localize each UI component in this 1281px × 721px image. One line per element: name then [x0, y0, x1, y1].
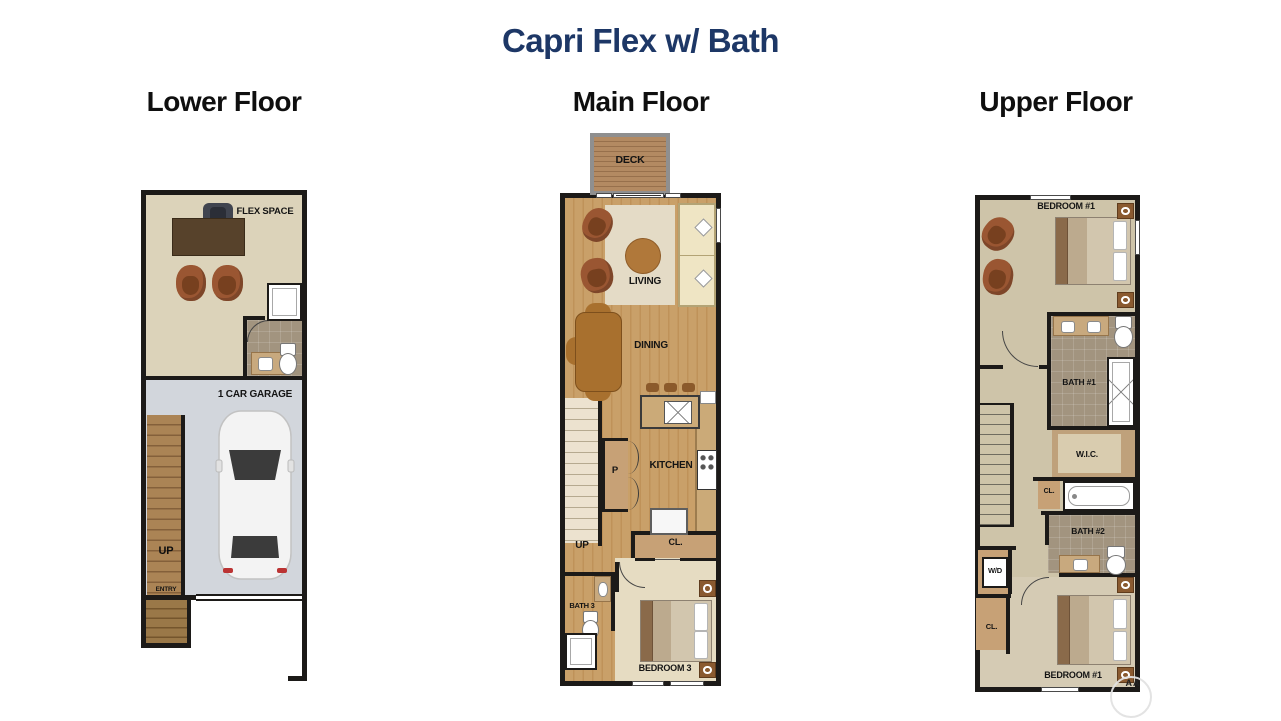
desk: [172, 218, 245, 256]
toilet: [279, 343, 295, 373]
sofa: [678, 203, 716, 307]
pantry-label: P: [602, 466, 628, 476]
wall: [980, 365, 1003, 369]
wall: [615, 562, 619, 592]
window: [670, 681, 704, 686]
main-floor-plan: DECK LIVING DINING KITCHEN P: [560, 133, 721, 686]
wall: [302, 600, 307, 681]
sink: [1087, 321, 1101, 333]
sofa-pillow: [694, 218, 712, 236]
bedroom3-label: BEDROOM 3: [620, 664, 710, 673]
nightstand: [699, 580, 716, 597]
entry-steps: [141, 600, 191, 648]
entry-label: ENTRY: [147, 587, 185, 594]
floorplan-page: Capri Flex w/ Bath Lower Floor Main Floo…: [0, 0, 1281, 721]
living-label: LIVING: [610, 277, 680, 288]
bath1-label: BATH #1: [1051, 378, 1107, 387]
upper-floor-heading: Upper Floor: [946, 86, 1166, 118]
bath2-vanity: [1059, 555, 1100, 573]
bedroom1-top-label: BEDROOM #1: [1027, 202, 1105, 211]
window: [596, 193, 612, 198]
closet-label: CL.: [635, 538, 716, 547]
toilet: [1106, 546, 1124, 573]
wall: [680, 558, 716, 561]
island-sink: [664, 401, 692, 424]
armchair: [212, 265, 243, 301]
nightstand: [1117, 203, 1134, 219]
lower-floor-plan: FLEX SPACE 1 CAR GARAGE UP ENTRY: [141, 190, 307, 682]
wall: [288, 676, 307, 681]
wall: [141, 376, 307, 380]
kitchen-label: KITCHEN: [636, 461, 706, 472]
washer-dryer-label: W/D: [982, 567, 1008, 575]
refrigerator: [650, 508, 688, 535]
sink: [598, 582, 608, 597]
nightstand: [1117, 577, 1134, 593]
bath1-double-vanity: [1053, 316, 1109, 336]
shower: [565, 633, 597, 670]
closet-door: [655, 559, 680, 560]
flex-space-label: FLEX SPACE: [227, 207, 303, 217]
window: [1135, 220, 1140, 255]
main-floor-heading: Main Floor: [531, 86, 751, 118]
wall: [1041, 511, 1135, 515]
up-label: UP: [562, 541, 602, 552]
deck-label: DECK: [590, 155, 670, 166]
shower: [1107, 357, 1135, 427]
bedroom1-bottom-label: BEDROOM #1: [1033, 671, 1113, 680]
bed-pillows: [1114, 218, 1128, 284]
nightstand: [1117, 292, 1134, 308]
wall: [635, 558, 655, 561]
wall: [243, 316, 247, 376]
stairs: [147, 415, 185, 595]
window: [665, 193, 681, 198]
wall: [1039, 365, 1047, 369]
up-label: UP: [147, 546, 185, 558]
shower: [267, 283, 302, 321]
sink: [1061, 321, 1075, 333]
window: [632, 681, 664, 686]
bar-stool: [646, 383, 659, 392]
bed-pillows: [1114, 596, 1128, 664]
sink: [1073, 559, 1088, 571]
bath3-label: BATH 3: [562, 602, 602, 610]
sliding-door-rail: [616, 195, 661, 196]
bed-pillows: [695, 601, 709, 661]
bar-stool: [682, 383, 695, 392]
wall: [1047, 312, 1051, 428]
window: [716, 208, 721, 243]
bathtub: [1063, 481, 1135, 511]
bath2-label: BATH #2: [1055, 527, 1121, 536]
bath3-vanity: [594, 576, 611, 602]
wall: [611, 576, 615, 631]
watermark-text: AA: [1118, 679, 1148, 688]
bed: [640, 600, 712, 662]
wic-label: W.I.C.: [1052, 450, 1122, 459]
closet-mid-label: CL.: [1038, 488, 1060, 495]
window: [1041, 687, 1079, 692]
dining-label: DINING: [626, 341, 676, 352]
bed: [1057, 595, 1131, 665]
sink: [258, 357, 273, 371]
shower-floor: [1112, 362, 1130, 422]
wall: [243, 316, 265, 320]
upper-floor-plan: BEDROOM #1 BATH #1 W.I.C. CL. BATH #2: [975, 195, 1140, 692]
closet-bottom-label: CL.: [976, 623, 1007, 631]
coffee-table: [625, 238, 661, 274]
stairs: [565, 398, 598, 543]
shower-floor: [570, 638, 592, 665]
counter-nook: [700, 391, 716, 404]
garage-label: 1 CAR GARAGE: [205, 390, 305, 401]
dining-table: [575, 312, 622, 392]
sofa-pillow: [694, 269, 712, 287]
car: [215, 408, 295, 582]
stairs: [978, 403, 1014, 527]
page-title: Capri Flex w/ Bath: [0, 22, 1281, 60]
armchair: [176, 265, 206, 301]
wall: [1045, 515, 1049, 545]
garage-door: [196, 594, 302, 601]
shower-floor: [272, 288, 297, 316]
lower-floor-heading: Lower Floor: [114, 86, 334, 118]
bed: [1055, 217, 1131, 285]
window: [1030, 195, 1071, 200]
bar-stool: [664, 383, 677, 392]
toilet: [1114, 316, 1131, 346]
wall: [1008, 546, 1012, 594]
